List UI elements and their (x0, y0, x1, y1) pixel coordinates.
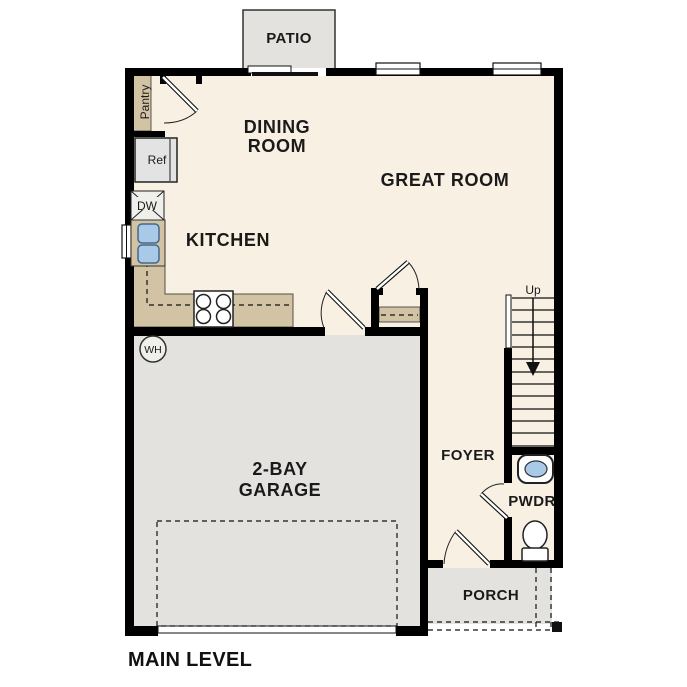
floor-plan: PATIO DINING ROOM GREAT ROOM KITCHEN 2-B… (0, 0, 687, 687)
page-title: MAIN LEVEL (128, 649, 252, 671)
kitchen-sink (131, 220, 165, 266)
powder-sink (518, 455, 553, 483)
window (376, 63, 420, 75)
stairs-up-label: Up (525, 283, 541, 297)
fixture-label-ref: Ref (148, 153, 167, 167)
sliding-door-track (252, 72, 318, 76)
floor-plan-page: PATIO DINING ROOM GREAT ROOM KITCHEN 2-B… (0, 0, 687, 687)
room-label-powder: PWDR (508, 493, 555, 510)
room-label-garage-1: 2-BAY (252, 459, 307, 479)
stove (194, 291, 233, 327)
room-label-patio: PATIO (266, 30, 312, 47)
toilet (522, 521, 548, 561)
stair-railing (506, 295, 511, 348)
room-label-garage-2: GARAGE (239, 480, 322, 500)
room-label-dining-2: ROOM (248, 136, 306, 156)
fixture-label-pantry: Pantry (138, 85, 152, 120)
room-label-dining-1: DINING (244, 117, 311, 137)
fixture-label-dw: DW (137, 199, 158, 213)
sliding-door-panel (248, 66, 291, 73)
fixture-label-wh: WH (144, 344, 162, 356)
porch-post (552, 622, 562, 632)
room-label-kitchen: KITCHEN (186, 230, 270, 250)
room-label-foyer: FOYER (441, 447, 495, 464)
window (122, 225, 131, 258)
garage-overhead-door (158, 626, 396, 633)
room-label-great-room: GREAT ROOM (381, 170, 510, 190)
window (493, 63, 541, 75)
room-label-porch: PORCH (463, 587, 519, 604)
